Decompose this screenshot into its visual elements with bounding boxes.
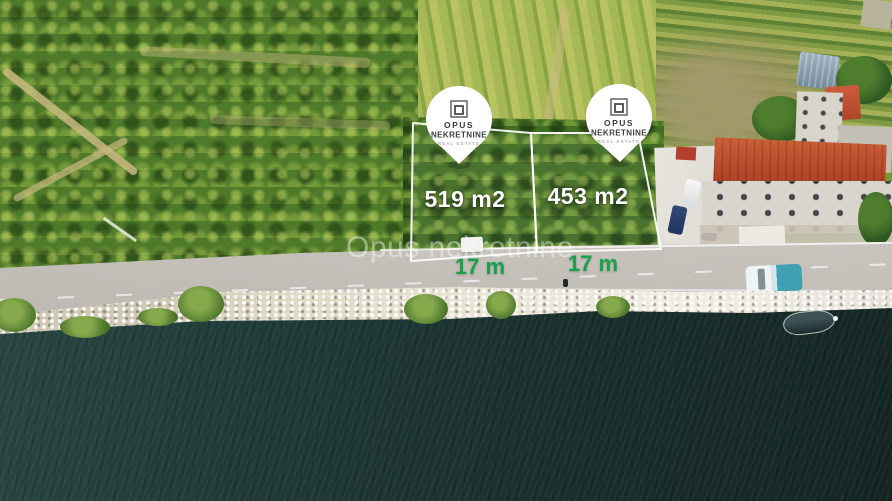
plot-1-area-label: 519 m2 [415,186,515,213]
pin-brand-bottom: NEKRETNINE [591,129,647,138]
watermark: Opus nekretnine [346,231,574,265]
plot-2-area-label: 453 m2 [538,183,638,210]
pin-brand-bottom: NEKRETNINE [431,131,487,140]
aerial-photo: OPUS NEKRETNINE REAL ESTATE OPUS NEKRETN… [0,0,892,501]
pin-brand-top: OPUS [604,118,634,128]
pin-subtitle: REAL ESTATE [438,141,480,146]
pin-subtitle: REAL ESTATE [598,139,640,144]
pin-brand-top: OPUS [444,120,474,130]
